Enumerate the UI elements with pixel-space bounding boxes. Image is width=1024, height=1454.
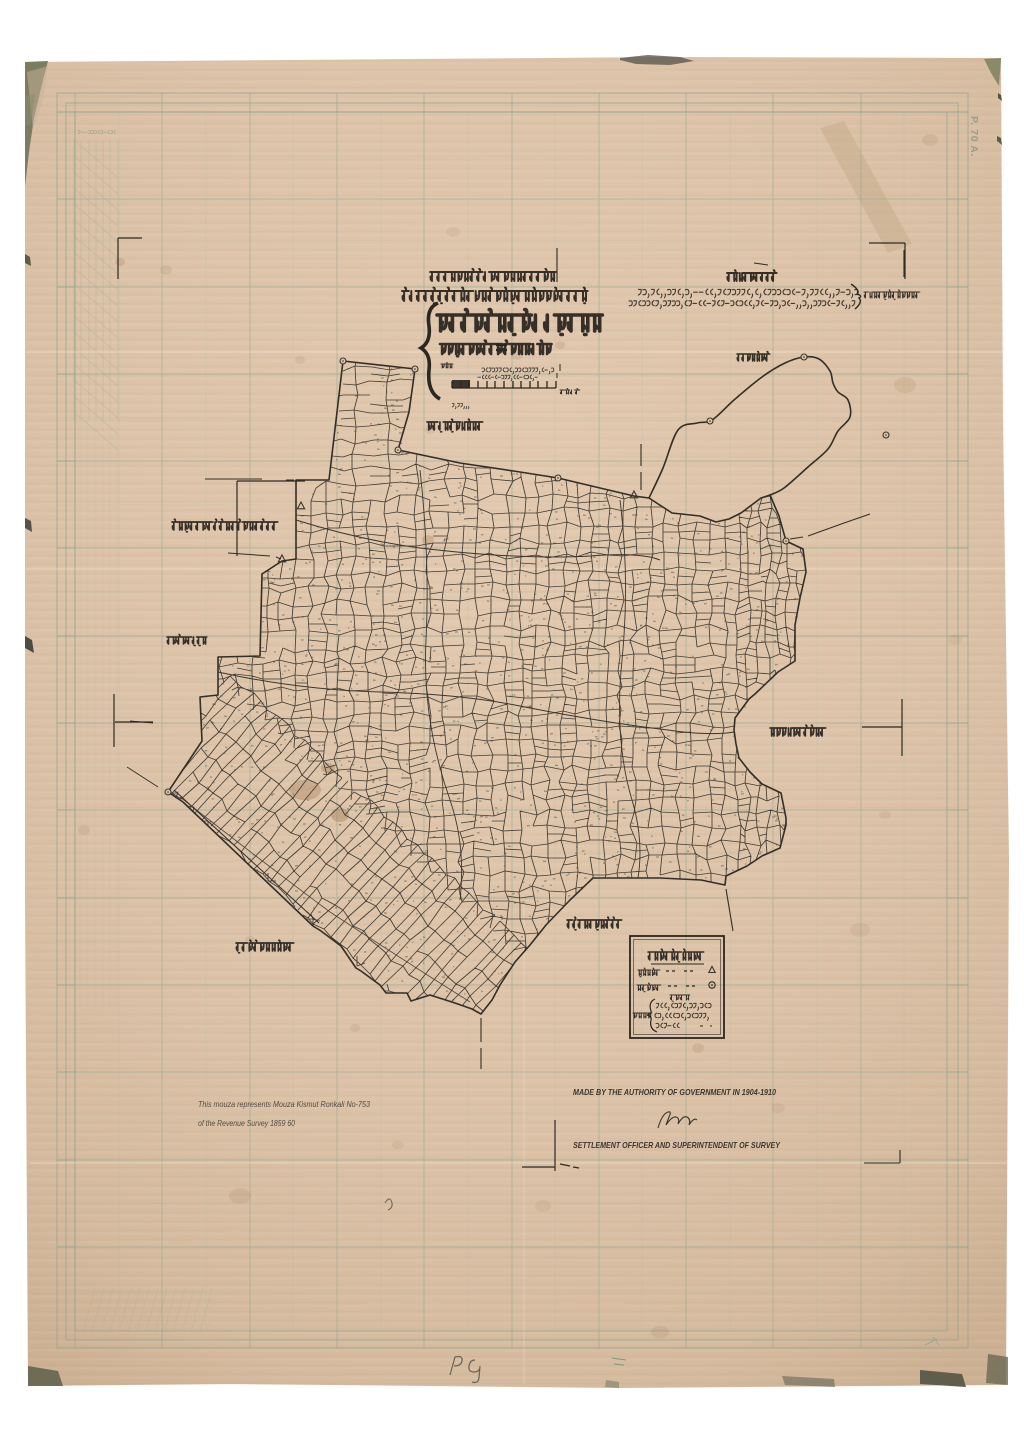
svg-text:of the Revenue Survey 1859 60: of the Revenue Survey 1859 60 (198, 1118, 295, 1128)
svg-text:MADE BY THE AUTHORITY OF GOVER: MADE BY THE AUTHORITY OF GOVERNMENT IN 1… (573, 1087, 776, 1097)
svg-text:This mouza represents Mouza Ki: This mouza represents Mouza Kismut Ronka… (198, 1099, 370, 1109)
svg-text:SETTLEMENT OFFICER AND SUPERIN: SETTLEMENT OFFICER AND SUPERINTENDENT OF… (573, 1140, 781, 1150)
svg-text:P. 70 A.: P. 70 A. (968, 116, 980, 157)
